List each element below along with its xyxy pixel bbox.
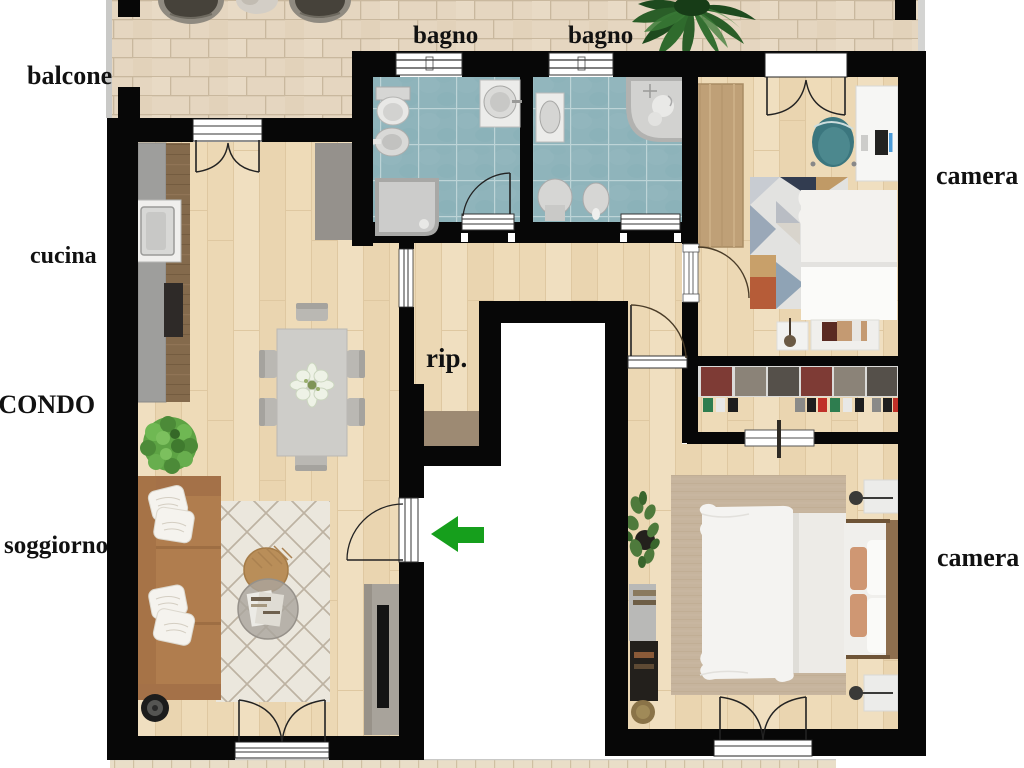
svg-text:camera: camera (936, 161, 1018, 190)
svg-text:bagno: bagno (413, 22, 478, 49)
svg-text:soggiorno: soggiorno (4, 532, 108, 559)
svg-text:rip.: rip. (426, 343, 467, 373)
svg-text:bagno: bagno (568, 22, 633, 49)
svg-text:balcone: balcone (27, 61, 112, 90)
svg-text:camera: camera (937, 543, 1019, 572)
svg-text:ECONDO: ECONDO (0, 390, 95, 419)
svg-text:cucina: cucina (30, 243, 97, 269)
